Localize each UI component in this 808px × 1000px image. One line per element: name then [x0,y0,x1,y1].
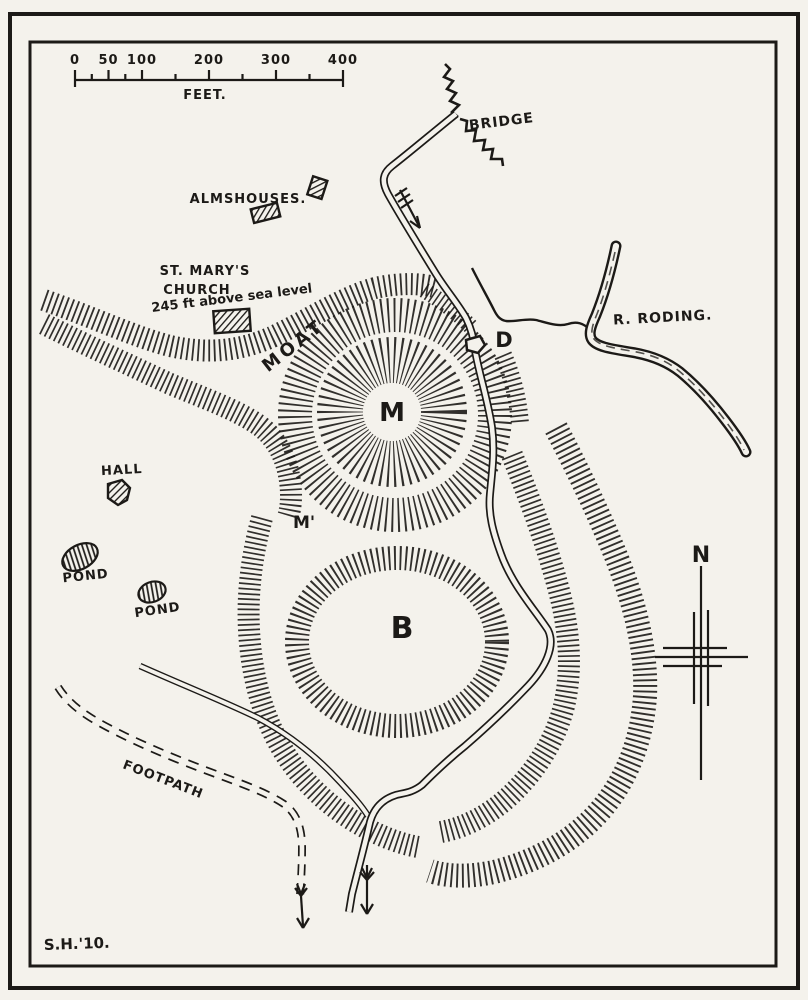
compass-north-label: N [692,543,710,568]
earthworks-plan-map: N 0 50 100 200 300 400 FEET. BRIDGE [0,0,808,1000]
church-building [213,309,250,333]
scale-unit-label: FEET. [183,88,226,103]
scale-tick-100: 100 [127,53,157,68]
label-bailey-b: B [391,611,414,646]
surveyor-signature: S.H.'10. [44,934,111,954]
scanned-map-page: N 0 50 100 200 300 400 FEET. BRIDGE [0,0,808,1000]
hall-building [108,480,130,505]
label-dam-d: D [495,328,512,352]
scale-tick-200: 200 [194,53,224,68]
label-church-line1: ST. MARY'S [160,264,251,279]
label-motte-m: M [379,398,405,428]
scale-tick-300: 300 [261,53,291,68]
scale-tick-400: 400 [328,53,358,68]
label-hall: HALL [101,462,143,479]
scale-tick-0: 0 [70,53,80,68]
scale-tick-50: 50 [98,53,118,68]
label-motte-prime: M' [293,513,315,533]
label-almshouses: ALMSHOUSES. [190,192,307,207]
